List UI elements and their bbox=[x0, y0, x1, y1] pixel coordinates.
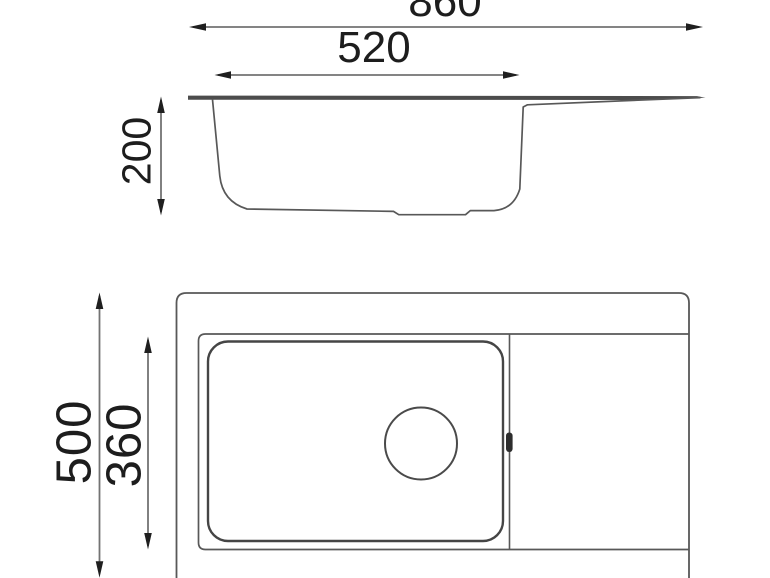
arrow-down-icon bbox=[144, 533, 152, 550]
arrow-up-icon bbox=[144, 337, 152, 354]
arrow-right-icon bbox=[686, 23, 703, 31]
arrow-up-icon bbox=[157, 97, 165, 114]
sink-outline bbox=[177, 293, 690, 578]
overflow-mark bbox=[506, 433, 513, 453]
arrow-left-icon bbox=[189, 23, 206, 31]
bowl-outline bbox=[208, 342, 503, 542]
dim-label-bowl-length: 360 bbox=[101, 403, 150, 488]
drain-hole bbox=[385, 408, 457, 480]
sink-technical-drawing: 860 520 200 500 360 bbox=[0, 0, 770, 578]
dim-label-bowl-width: 520 bbox=[337, 26, 410, 70]
dim-label-overall-length: 500 bbox=[51, 400, 100, 485]
arrow-right-icon bbox=[503, 71, 520, 79]
arrow-left-icon bbox=[215, 71, 232, 79]
dim-bowl-width bbox=[215, 71, 520, 79]
arrow-down-icon bbox=[157, 199, 165, 216]
recess-outline bbox=[199, 334, 690, 550]
arrow-up-icon bbox=[96, 293, 104, 310]
dim-label-bowl-depth: 200 bbox=[117, 117, 158, 185]
section-view bbox=[157, 23, 705, 215]
sink-rim-profile bbox=[188, 96, 706, 100]
dim-label-overall-width: 860 bbox=[408, 0, 481, 24]
arrow-down-icon bbox=[96, 561, 104, 578]
drawing-geometry bbox=[0, 0, 770, 578]
sink-bowl-profile bbox=[213, 98, 701, 215]
plan-view bbox=[96, 293, 689, 578]
